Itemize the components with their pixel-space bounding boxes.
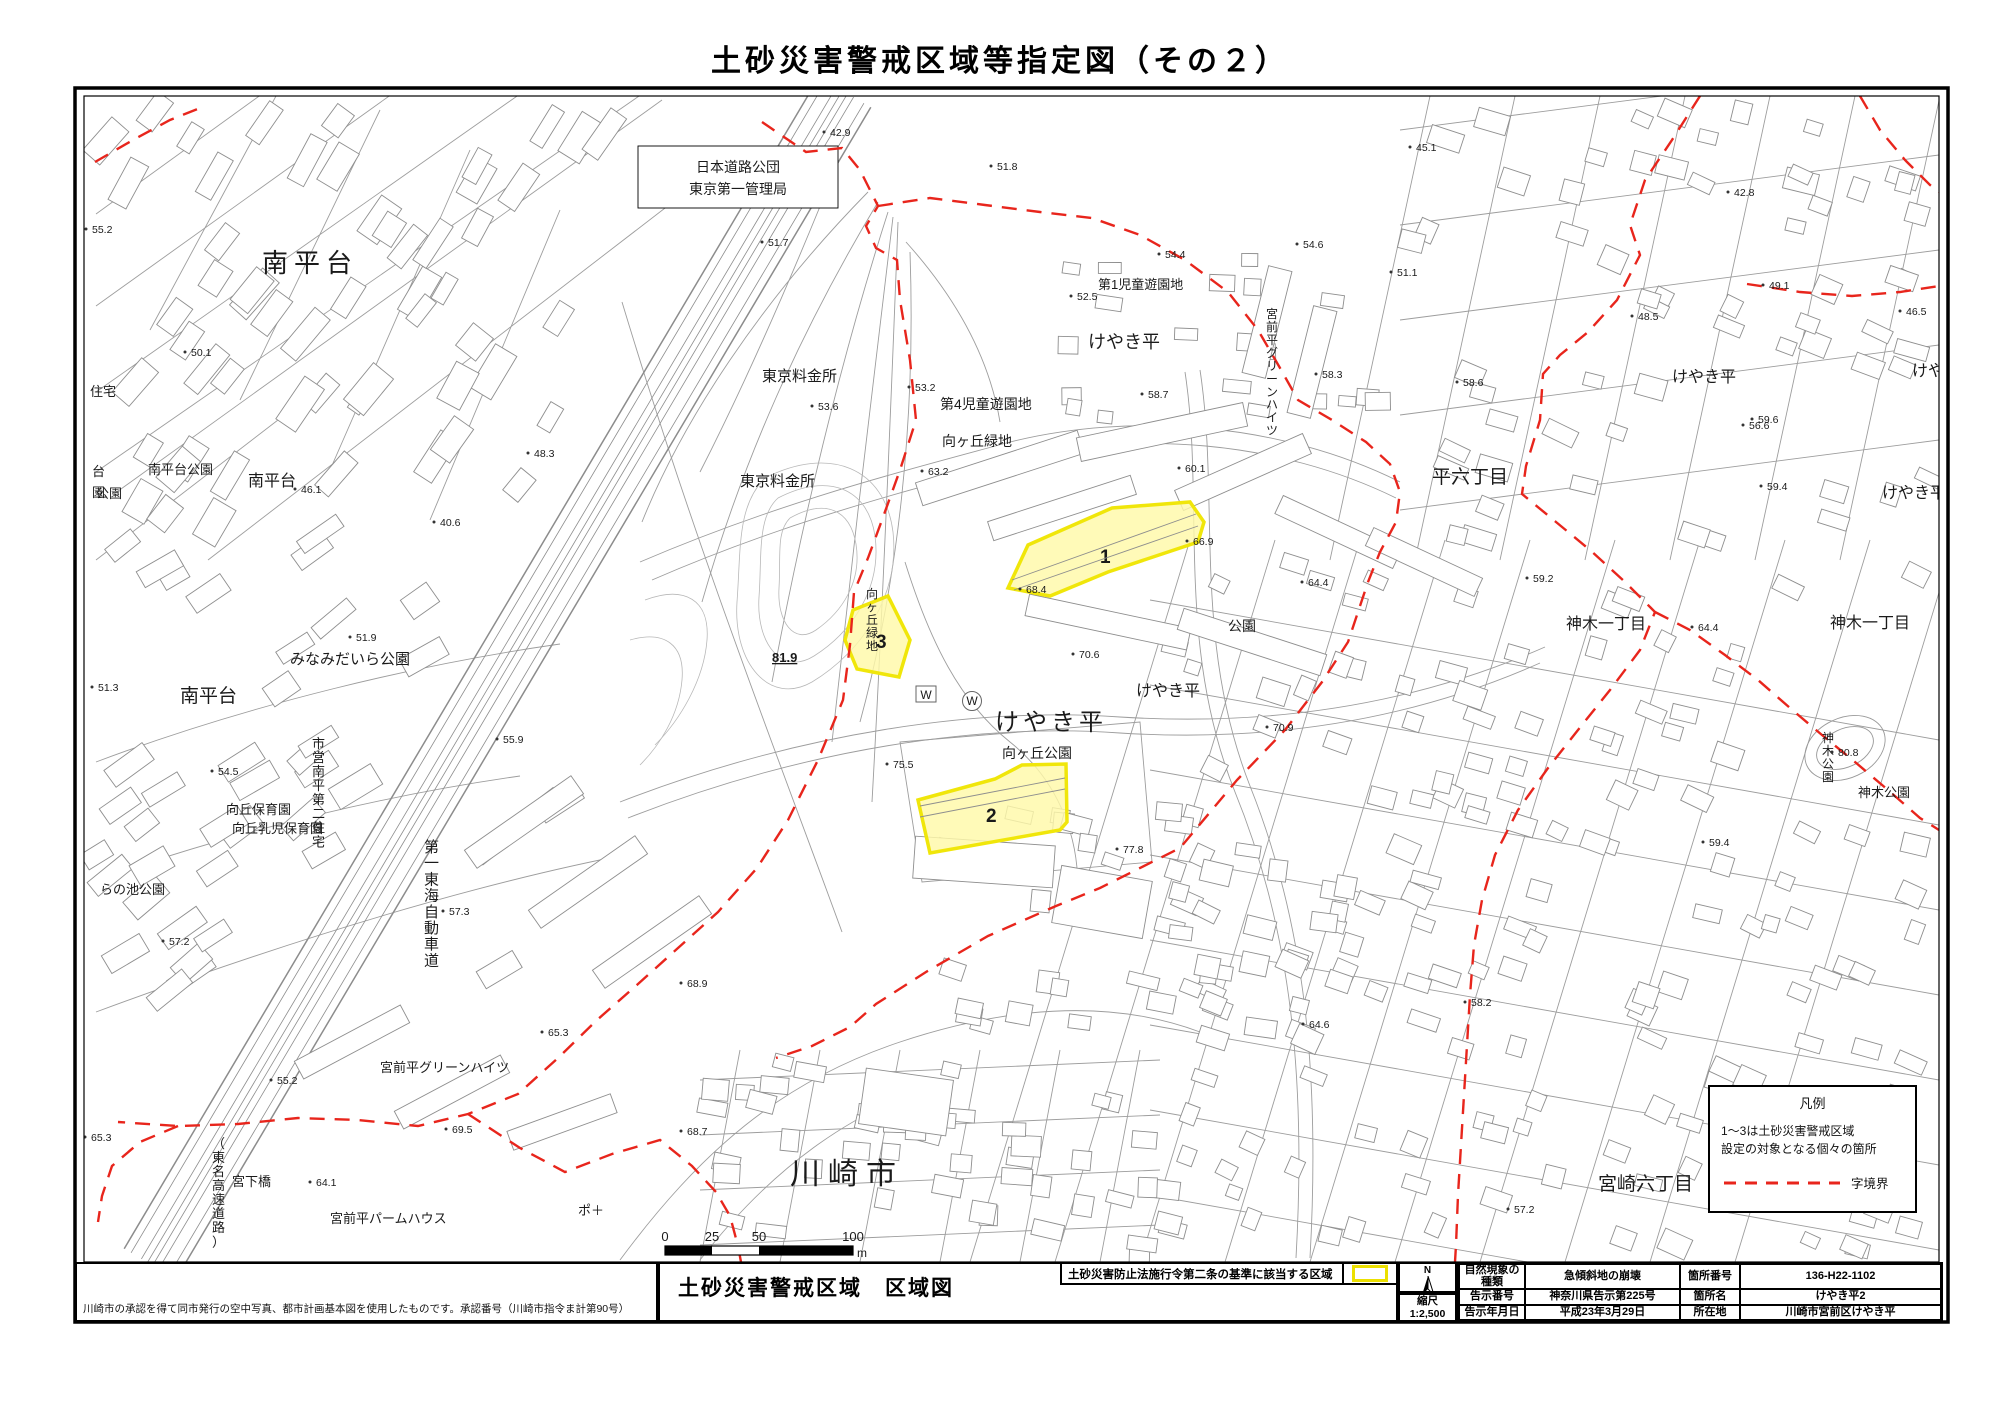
- scalebar-tick: 50: [752, 1229, 766, 1244]
- elevation-label: 57.3: [449, 906, 470, 918]
- zone-number: 1: [1100, 547, 1111, 568]
- map-label: 第1児童遊園地: [1098, 277, 1183, 292]
- map-label: 市営南平第二住宅: [312, 736, 325, 849]
- table-value: 神奈川県告示第225号: [1525, 1289, 1680, 1304]
- elevation-label: 54.4: [1165, 249, 1186, 261]
- elevation-label: 70.6: [1079, 649, 1100, 661]
- map-label: 南平台: [248, 472, 296, 490]
- disclaimer-cell: 川崎市の承認を得て同市発行の空中写真、都市計画基本図を使用したものです。承認番号…: [75, 1262, 658, 1322]
- table-label: 箇所番号: [1680, 1264, 1740, 1289]
- map-label: （東名高速道路）: [212, 1136, 225, 1249]
- elevation-label: 52.5: [1077, 291, 1098, 303]
- map-label: 向ヶ丘緑地: [942, 433, 1012, 449]
- map-label: けやき平: [1136, 682, 1200, 700]
- elevation-label: 64.4: [1698, 622, 1719, 634]
- elevation-label: 80.8: [1838, 747, 1859, 759]
- table-value: 136-H22-1102: [1740, 1264, 1941, 1289]
- elevation-label: 42.8: [1734, 187, 1755, 199]
- elevation-label: 46.5: [1906, 306, 1927, 318]
- elevation-label: 68.7: [687, 1126, 708, 1138]
- elevation-label: 59.2: [1533, 573, 1554, 585]
- map-label: 平六丁目: [1432, 466, 1508, 488]
- elevation-label: 48.3: [534, 448, 555, 460]
- compass-cell: N: [1398, 1262, 1457, 1293]
- map-label: 公園: [1228, 618, 1256, 634]
- table-value: けやき平2: [1740, 1289, 1941, 1304]
- table-label: 所在地: [1680, 1305, 1740, 1320]
- elevation-label: 45.1: [1416, 142, 1437, 154]
- map-label: 第4児童遊園地: [940, 396, 1032, 412]
- map-label: 神木一丁目: [1566, 615, 1646, 633]
- elevation-label: 48.5: [1638, 311, 1659, 323]
- water-mark-label: W: [920, 688, 932, 702]
- map-label: けやき平: [1672, 368, 1736, 386]
- legend-line2: 設定の対象となる個々の箇所: [1721, 1140, 1915, 1158]
- elevation-label: 54.5: [218, 766, 239, 778]
- north-arrow-icon: [1420, 1276, 1436, 1291]
- map-label: 神木公園: [1858, 785, 1910, 800]
- map-canvas: 123WW南平台南平台南平台公園公園住宅台園南平台みなみだいら公園向丘保育園向丘…: [0, 0, 2000, 1414]
- zone-number: 2: [986, 806, 997, 827]
- map-label: 日本道路公団: [696, 159, 780, 175]
- map-label: 81.9: [772, 650, 797, 665]
- map-label: 向丘保育園: [226, 802, 291, 817]
- map-label: 宮下橋: [232, 1174, 271, 1189]
- map-label: 東京料金所: [762, 368, 837, 385]
- disclaimer-text: 川崎市の承認を得て同市発行の空中写真、都市計画基本図を使用したものです。承認番号…: [83, 1301, 629, 1316]
- scalebar-tick: 0: [661, 1229, 668, 1244]
- table-label: 告示番号: [1459, 1289, 1525, 1304]
- map-label: 住宅: [90, 384, 116, 399]
- elevation-label: 60.1: [1185, 463, 1206, 475]
- elevation-label: 58.3: [1322, 369, 1343, 381]
- map-label: 川崎市: [790, 1158, 904, 1191]
- map-label: 台: [92, 464, 105, 479]
- elevation-label: 58.2: [1471, 997, 1492, 1009]
- elevation-label: 64.1: [316, 1177, 337, 1189]
- legend-boundary-label: 字境界: [1851, 1173, 1889, 1192]
- elevation-label: 51.3: [98, 682, 119, 694]
- map-sheet: 土砂災害警戒区域等指定図（その２） 123WW南平台南平台南平台公園公園住宅台園…: [0, 0, 2000, 1414]
- elevation-label: 65.3: [548, 1027, 569, 1039]
- scale-label: 縮尺: [1417, 1295, 1438, 1307]
- elevation-label: 66.9: [1193, 536, 1214, 548]
- map-label: 神木一丁目: [1830, 614, 1910, 632]
- elevation-label: 65.3: [91, 1132, 112, 1144]
- scale-value: 1:2,500: [1410, 1308, 1446, 1320]
- boundary-dashed-line-icon: [1722, 1179, 1842, 1187]
- map-label: 東京料金所: [740, 473, 815, 490]
- water-mark-label: W: [966, 694, 978, 708]
- legend-title: 凡例: [1710, 1093, 1915, 1112]
- elevation-label: 51.9: [356, 632, 377, 644]
- elevation-label: 55.9: [503, 734, 524, 746]
- criteria-cell: 土砂災害防止法施行令第二条の基準に該当する区域: [1060, 1262, 1398, 1285]
- elevation-label: 53.6: [818, 401, 839, 413]
- elevation-label: 70.9: [1273, 722, 1294, 734]
- table-value: 急傾斜地の崩壊: [1525, 1264, 1680, 1289]
- elevation-label: 68.9: [687, 978, 708, 990]
- elevation-label: 54.6: [1303, 239, 1324, 251]
- elevation-label: 59.4: [1709, 837, 1730, 849]
- elevation-label: 63.2: [928, 466, 949, 478]
- elevation-label: 64.6: [1309, 1019, 1330, 1031]
- elevation-label: 49.1: [1769, 280, 1790, 292]
- elevation-label: 75.5: [893, 759, 914, 771]
- map-label: 園: [92, 485, 105, 500]
- elevation-label: 51.8: [997, 161, 1018, 173]
- scale-cell: 縮尺 1:2,500: [1398, 1293, 1457, 1322]
- map-label: 宮崎六丁目: [1598, 1173, 1693, 1195]
- map-label: 宮前平グリーンハイツ: [1266, 306, 1278, 438]
- attribute-table: 自然現象の種類 急傾斜地の崩壊 箇所番号 136-H22-1102 告示番号 神…: [1457, 1262, 1943, 1322]
- elevation-label: 57.2: [1514, 1204, 1535, 1216]
- map-label: けやき平: [1882, 484, 1946, 502]
- map-label: 第一東海自動車道: [424, 838, 439, 969]
- elevation-label: 64.4: [1308, 577, 1329, 589]
- elevation-label: 55.2: [277, 1075, 298, 1087]
- elevation-label: 57.2: [169, 936, 190, 948]
- map-label: 宮前平グリーンハイツ: [380, 1060, 509, 1075]
- map-label: けやき平: [995, 709, 1107, 736]
- legend-line1: 1～3は土砂災害警戒区域: [1721, 1122, 1915, 1140]
- scalebar-unit: m: [857, 1246, 867, 1260]
- map-label: ポ＋: [578, 1203, 604, 1218]
- elevation-label: 40.6: [440, 517, 461, 529]
- compass-n-label: N: [1424, 1265, 1431, 1276]
- elevation-label: 58.6: [1463, 377, 1484, 389]
- elevation-label: 51.7: [768, 237, 789, 249]
- map-label: 神木公園: [1822, 731, 1834, 784]
- hazard-zone-swatch: [1352, 1265, 1388, 1282]
- elevation-label: 69.5: [452, 1124, 473, 1136]
- map-label: 南平台: [180, 685, 237, 707]
- map-label: みなみだいら公園: [290, 651, 410, 668]
- elevation-label: 68.4: [1026, 584, 1047, 596]
- elevation-label: 58.7: [1148, 389, 1169, 401]
- table-value: 平成23年3月29日: [1525, 1305, 1680, 1320]
- table-label: 箇所名: [1680, 1289, 1740, 1304]
- map-title: 土砂災害警戒区域 区域図: [678, 1277, 954, 1300]
- scalebar-tick: 100: [842, 1229, 864, 1244]
- elevation-label: 53.2: [915, 382, 936, 394]
- elevation-label: 55.2: [92, 224, 113, 236]
- map-label: 東京第一管理局: [689, 181, 787, 197]
- elevation-label: 77.8: [1123, 844, 1144, 856]
- map-label: 南平台: [262, 248, 358, 278]
- map-label: けやき平: [1088, 332, 1160, 352]
- table-label: 告示年月日: [1459, 1305, 1525, 1320]
- criteria-label: 土砂災害防止法施行令第二条の基準に該当する区域: [1062, 1266, 1342, 1282]
- map-label: 南平台公園: [148, 462, 213, 477]
- elevation-label: 50.1: [191, 347, 212, 359]
- elevation-label: 59.6: [1758, 414, 1779, 426]
- map-label: らの池公園: [100, 882, 165, 897]
- map-frame: [84, 96, 1939, 1262]
- elevation-label: 59.4: [1767, 481, 1788, 493]
- elevation-label: 46.1: [301, 484, 322, 496]
- table-label: 自然現象の種類: [1459, 1264, 1525, 1289]
- table-value: 川崎市宮前区けやき平: [1740, 1305, 1941, 1320]
- elevation-label: 51.1: [1397, 267, 1418, 279]
- elevation-label: 42.9: [830, 127, 851, 139]
- map-label: 宮前平パームハウス: [330, 1211, 447, 1226]
- map-label: 向ヶ丘公園: [1002, 745, 1072, 761]
- scalebar-tick: 25: [705, 1229, 719, 1244]
- map-label: 向ヶ丘緑地: [866, 586, 878, 653]
- map-label: 向丘乳児保育園: [232, 821, 323, 836]
- legend-box: 凡例 1～3は土砂災害警戒区域 設定の対象となる個々の箇所 字境界: [1708, 1085, 1917, 1213]
- criteria-swatch-cell: [1342, 1264, 1396, 1283]
